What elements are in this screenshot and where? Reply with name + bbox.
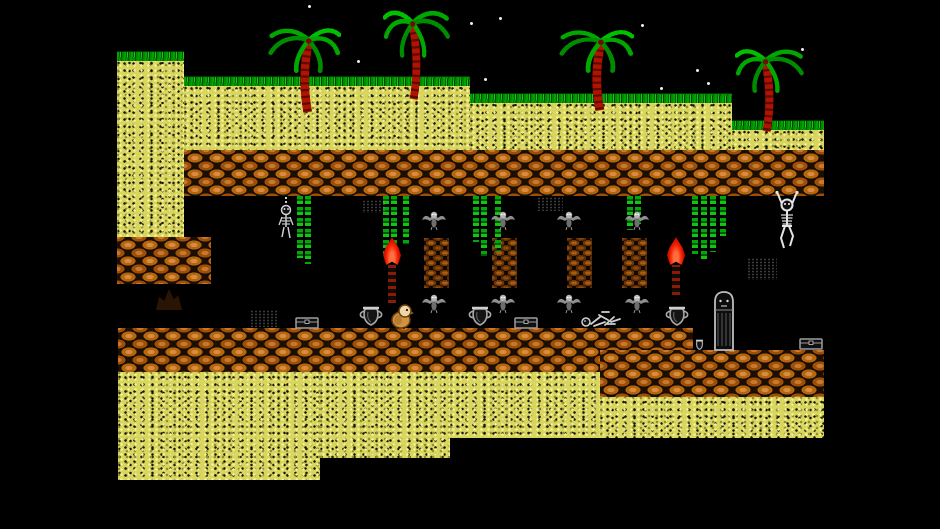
dust-patch xyxy=(362,200,386,213)
dust-patch xyxy=(747,258,777,280)
bat xyxy=(490,210,516,232)
star xyxy=(357,60,360,63)
bat xyxy=(421,210,447,232)
palm-tree xyxy=(735,45,807,133)
vine xyxy=(692,196,698,254)
bat xyxy=(556,210,582,232)
brick-platform xyxy=(600,350,824,397)
bat xyxy=(624,293,650,315)
torch-flame xyxy=(667,237,685,265)
star xyxy=(308,5,311,8)
hanging-skeleton xyxy=(770,190,804,254)
vine xyxy=(305,196,311,264)
cave-pillar xyxy=(567,238,592,288)
stalagmite xyxy=(156,286,182,310)
hanging-skeleton xyxy=(273,197,299,243)
cave-pillar xyxy=(622,238,647,288)
torch-pole xyxy=(388,265,396,303)
game-canvas[interactable] xyxy=(0,0,940,529)
player-character[interactable] xyxy=(390,303,414,329)
treasure-urn-small xyxy=(694,339,705,351)
star xyxy=(660,87,663,90)
star xyxy=(470,22,473,25)
star xyxy=(484,78,487,81)
vine xyxy=(720,196,726,236)
palm-tree xyxy=(556,26,634,112)
treasure-urn xyxy=(357,305,385,328)
treasure-chest xyxy=(799,337,823,350)
star xyxy=(499,17,502,20)
sand-block xyxy=(117,58,184,237)
vine xyxy=(473,196,479,242)
sand-block xyxy=(600,397,824,438)
star xyxy=(707,82,710,85)
sand-block xyxy=(118,372,320,480)
treasure-chest xyxy=(295,316,319,329)
vine xyxy=(701,196,707,262)
treasure-urn xyxy=(663,305,691,328)
sand-block xyxy=(450,372,600,438)
dust-patch xyxy=(250,310,278,327)
brick-platform xyxy=(117,237,211,284)
bat xyxy=(556,293,582,315)
grass-strip xyxy=(117,51,184,61)
bat xyxy=(421,293,447,315)
dust-patch xyxy=(537,197,563,211)
brick-platform xyxy=(184,150,824,196)
mummy-sarcophagus xyxy=(711,290,737,352)
cave-pillar xyxy=(424,238,449,288)
bat xyxy=(624,210,650,232)
vine xyxy=(481,196,487,256)
vine xyxy=(710,196,716,252)
treasure-chest xyxy=(514,316,538,329)
vine xyxy=(403,196,409,244)
sand-block xyxy=(320,372,450,458)
star xyxy=(641,24,644,27)
treasure-urn xyxy=(466,305,494,328)
palm-tree xyxy=(265,24,341,114)
palm-tree xyxy=(383,6,453,101)
torch-pole xyxy=(672,265,680,295)
star xyxy=(696,69,699,72)
skeleton-remains xyxy=(581,306,622,328)
